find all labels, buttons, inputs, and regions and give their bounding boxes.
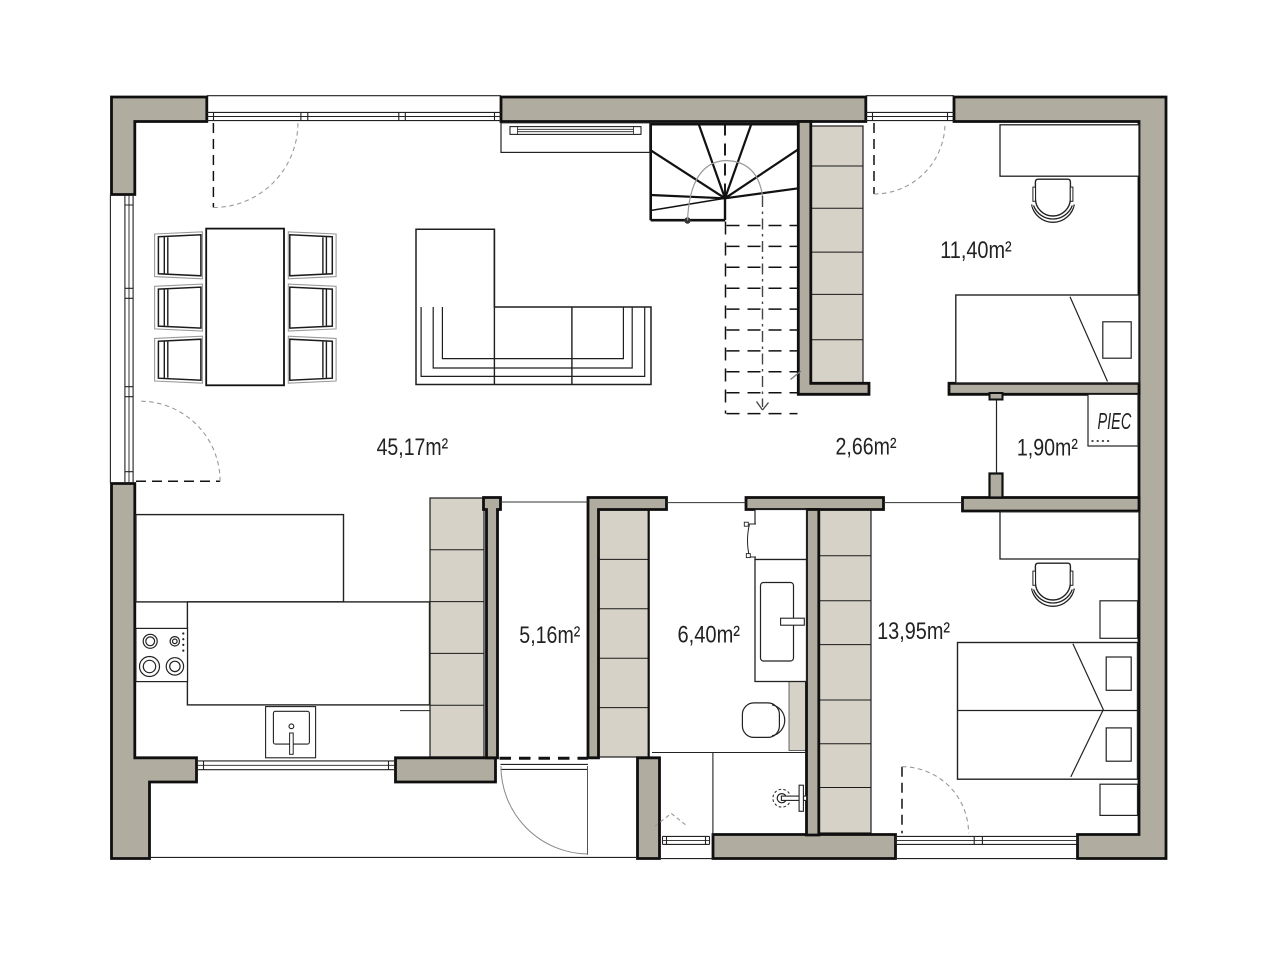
svg-text:6,40m²: 6,40m² — [678, 622, 741, 649]
svg-text:11,40m²: 11,40m² — [940, 237, 1012, 264]
svg-text:2,66m²: 2,66m² — [836, 434, 897, 461]
svg-text:1,90m²: 1,90m² — [1017, 434, 1078, 461]
svg-text:45,17m²: 45,17m² — [377, 434, 449, 461]
svg-text:PIEC: PIEC — [1098, 408, 1132, 434]
svg-text:13,95m²: 13,95m² — [877, 618, 950, 645]
svg-text:5,16m²: 5,16m² — [519, 622, 580, 649]
